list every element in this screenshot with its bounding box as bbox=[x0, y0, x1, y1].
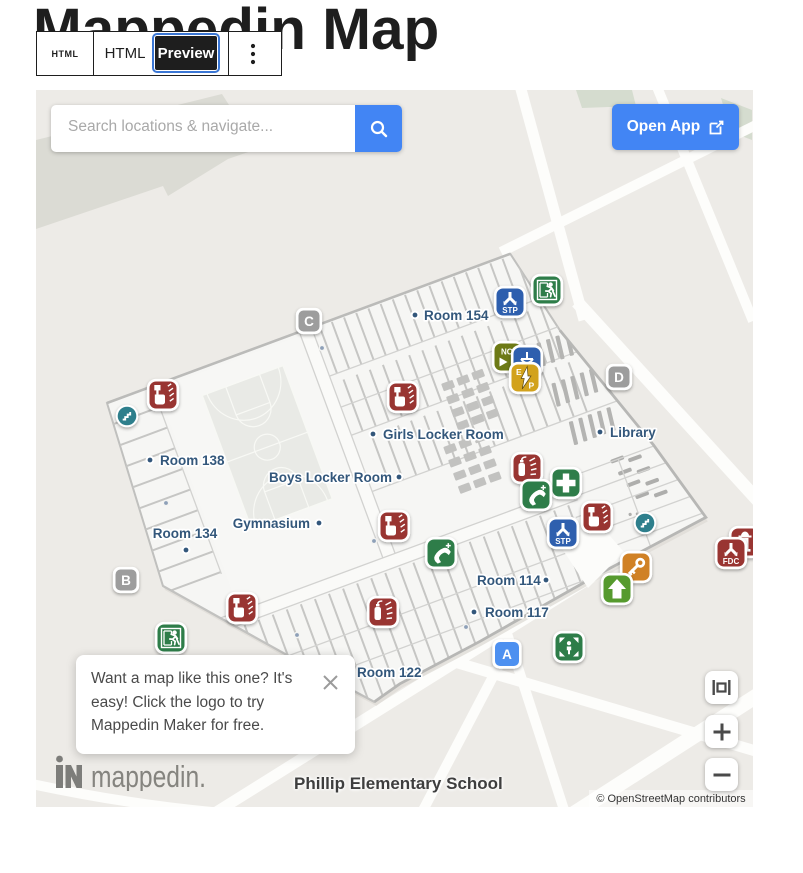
svg-text:Library: Library bbox=[610, 425, 656, 440]
svg-text:Room 117: Room 117 bbox=[485, 605, 549, 620]
svg-text:A: A bbox=[502, 647, 512, 662]
svg-text:P: P bbox=[529, 381, 535, 391]
svg-text:E: E bbox=[516, 367, 522, 377]
svg-text:Gymnasium: Gymnasium bbox=[233, 516, 310, 531]
svg-text:Room 154: Room 154 bbox=[424, 308, 489, 323]
svg-text:mappedin.: mappedin. bbox=[91, 759, 206, 791]
svg-text:Room 134: Room 134 bbox=[153, 526, 218, 541]
svg-text:Boys Locker Room: Boys Locker Room bbox=[269, 470, 392, 485]
svg-text:Girls Locker Room: Girls Locker Room bbox=[383, 427, 504, 442]
svg-text:Room 114: Room 114 bbox=[477, 573, 541, 588]
svg-text:FDC: FDC bbox=[723, 557, 740, 566]
svg-text:STP: STP bbox=[502, 306, 518, 315]
svg-text:Room 138: Room 138 bbox=[160, 453, 225, 468]
svg-text:Room 122: Room 122 bbox=[357, 665, 422, 680]
svg-text:C: C bbox=[304, 314, 314, 329]
svg-text:STP: STP bbox=[555, 537, 571, 546]
svg-text:D: D bbox=[614, 370, 624, 385]
svg-text:B: B bbox=[121, 573, 131, 588]
